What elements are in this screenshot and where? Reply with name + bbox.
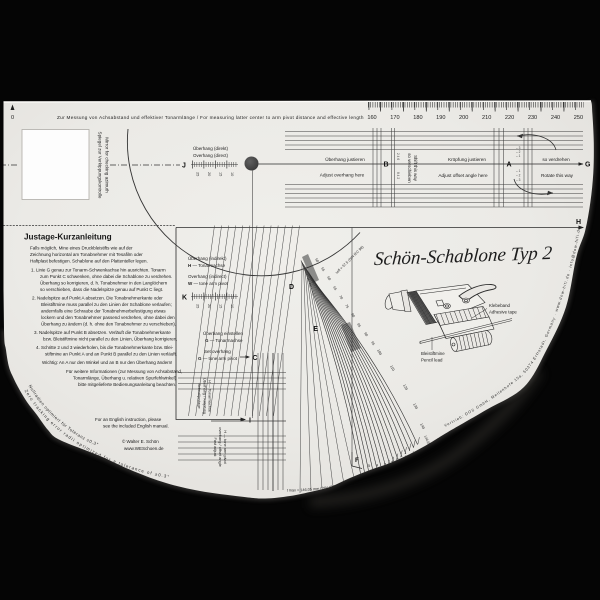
svg-text:Set overhang: Set overhang [204, 349, 231, 354]
svg-text:0: 0 [11, 115, 14, 121]
svg-text:overhang / offset angle: overhang / offset angle [218, 427, 223, 467]
svg-text:H: H [576, 219, 581, 226]
svg-text:15: 15 [219, 172, 223, 176]
svg-text:Fast adjust: Fast adjust [213, 437, 218, 457]
svg-text:For an English instruction, pl: For an English instruction, please [95, 417, 162, 422]
svg-text:1. Linie G genau zur Tonarm-S: 1. Linie G genau zur Tonarm-Schwenkachse… [31, 268, 166, 273]
svg-text:Pencil lead: Pencil lead [421, 358, 443, 363]
svg-text:170: 170 [390, 115, 399, 121]
svg-text:230: 230 [528, 115, 537, 121]
svg-text:Adhesive tape: Adhesive tape [489, 310, 517, 315]
svg-text:210: 210 [482, 115, 491, 121]
svg-text:190: 190 [436, 115, 445, 121]
svg-text:25: 25 [196, 172, 200, 176]
svg-text:250: 250 [574, 115, 583, 121]
svg-text:so verschieben: so verschieben [407, 153, 412, 183]
svg-text:4. Schritte 2 und 3 wiederhol: 4. Schritte 2 und 3 wiederholen, bis die… [36, 345, 174, 350]
svg-text:B: B [384, 162, 389, 169]
svg-text:220: 220 [505, 115, 514, 121]
svg-text:J: J [182, 163, 186, 170]
svg-text:Überhang einstellen: Überhang einstellen [203, 330, 244, 336]
svg-text:Für weitere Informationen (zur: Für weitere Informationen (zur Messung v… [66, 369, 182, 374]
svg-text:E: E [313, 326, 318, 333]
svg-text:160: 160 [367, 115, 376, 121]
svg-text:Justage-Kurzanleitung: Justage-Kurzanleitung [24, 233, 112, 242]
svg-text:Bleistiftmine: Bleistiftmine [421, 351, 445, 356]
svg-text:Mirror for checking azimuth: Mirror for checking azimuth [105, 137, 110, 193]
svg-text:Überhang (indirekt): Überhang (indirekt) [188, 255, 227, 261]
svg-text:Haftplast befestigen. Schablon: Haftplast befestigen. Schablone auf den … [30, 259, 148, 264]
svg-text:bitte mitgelieferte Bedienungs: bitte mitgelieferte Bedienungsanleitung … [78, 382, 176, 387]
svg-text:– 1: – 1 [516, 154, 521, 158]
svg-text:© Walter E. Schön: © Walter E. Schön [122, 438, 159, 444]
svg-text:lockern und den Tonabnehmer pa: lockern und den Tonabnehmer passend verd… [41, 315, 175, 320]
svg-text:H — tone arm pivot: H — tone arm pivot [223, 430, 228, 464]
svg-text:andernfalls eine Schraube der: andernfalls eine Schraube der Tonabnehme… [41, 309, 166, 314]
svg-text:bzw. Bleistiftmine nicht paral: bzw. Bleistiftmine nicht parallel zu den… [43, 336, 177, 342]
svg-text:Adjust overhang here: Adjust overhang here [320, 173, 365, 178]
svg-text:F: F [355, 457, 359, 464]
svg-text:15: 15 [219, 304, 223, 308]
svg-text:stiftmine an Punkt A und an Pu: stiftmine an Punkt A und an Punkt B para… [45, 352, 177, 357]
svg-text:Adjust offset angle here: Adjust offset angle here [438, 173, 488, 178]
svg-text:see the included English manua: see the included English manual. [103, 424, 169, 429]
svg-text:D: D [289, 284, 294, 291]
svg-text:Kröpfung justieren: Kröpfung justieren [448, 157, 486, 162]
svg-text:H — Tonarmachse: H — Tonarmachse [188, 263, 226, 268]
svg-text:2 4 6: 2 4 6 [396, 153, 400, 160]
svg-text:zum Punkt C schwenken, ohne da: zum Punkt C schwenken, ohne dabei die Sc… [40, 274, 172, 279]
svg-text:Tonarmlänge, Überhang u. relat: Tonarmlänge, Überhang u. relativen Spurf… [73, 375, 177, 381]
svg-text:www.WESchoen.de: www.WESchoen.de [124, 446, 164, 451]
svg-text:so verschieben, dass die Nadel: so verschieben, dass die Nadelspitze gen… [40, 287, 163, 292]
svg-text:– 2: – 2 [516, 174, 521, 178]
svg-text:2. Nadelspitze auf Punkt A ab: 2. Nadelspitze auf Punkt A absetzen. Die… [32, 296, 163, 301]
svg-text:25: 25 [196, 304, 200, 308]
svg-text:Überhang (direkt): Überhang (direkt) [193, 145, 229, 151]
svg-text:Schnelljustage: Schnelljustage [197, 383, 202, 408]
svg-text:A: A [507, 162, 512, 169]
svg-text:200: 200 [459, 115, 468, 121]
svg-text:8 4 2: 8 4 2 [396, 172, 400, 179]
svg-text:Überhang zu ändern (d. h. ohne: Überhang zu ändern (d. h. ohne den Tonab… [41, 321, 176, 327]
svg-text:240: 240 [551, 115, 560, 121]
svg-text:20: 20 [207, 172, 211, 176]
svg-text:Überhang justieren: Überhang justieren [325, 156, 365, 162]
svg-text:Spiegel zur Verkippungskontrol: Spiegel zur Verkippungskontrolle [98, 132, 103, 199]
svg-text:Überhang / Kröpfung: Überhang / Kröpfung [203, 378, 208, 414]
svg-text:G: G [585, 162, 591, 169]
svg-text:Shift this way: Shift this way [413, 155, 418, 182]
svg-text:G — Tonarmachse: G — Tonarmachse [205, 338, 243, 343]
svg-text:Bleistiftmine muss parallel zu: Bleistiftmine muss parallel zu den Linie… [41, 302, 172, 307]
svg-text:– 3: – 3 [516, 178, 521, 182]
svg-text:– 1: – 1 [516, 169, 521, 173]
svg-text:Zeichnung horizontal am Tonabn: Zeichnung horizontal am Tonabnehmer mit … [30, 252, 143, 257]
svg-text:Überhang so korrigieren, d. h.: Überhang so korrigieren, d. h. Tonabnehm… [40, 280, 168, 286]
svg-text:Klebeband: Klebeband [489, 303, 511, 308]
svg-text:180: 180 [413, 115, 422, 121]
svg-text:so verdrehen: so verdrehen [542, 157, 570, 162]
svg-text:Zur Messung von Achsabstand un: Zur Messung von Achsabstand und effektiv… [57, 115, 364, 120]
svg-text:Falls möglich, Mine eines Druc: Falls möglich, Mine eines Druckbleistift… [30, 246, 133, 251]
svg-text:10: 10 [230, 172, 234, 176]
svg-text:Wichtig: An A nur den Winkel u: Wichtig: An A nur den Winkel und an B nu… [42, 359, 172, 365]
svg-text:Overhang (direct): Overhang (direct) [193, 153, 229, 158]
svg-text:Rotate this way: Rotate this way [541, 173, 574, 178]
svg-text:3. Nadelspitze auf Punkt B ab: 3. Nadelspitze auf Punkt B absetzen. Ver… [34, 330, 171, 335]
svg-text:W — tone arm pivot: W — tone arm pivot [188, 281, 229, 286]
svg-text:K: K [182, 295, 187, 302]
svg-text:H — Tonarmachse: H — Tonarmachse [208, 380, 213, 412]
